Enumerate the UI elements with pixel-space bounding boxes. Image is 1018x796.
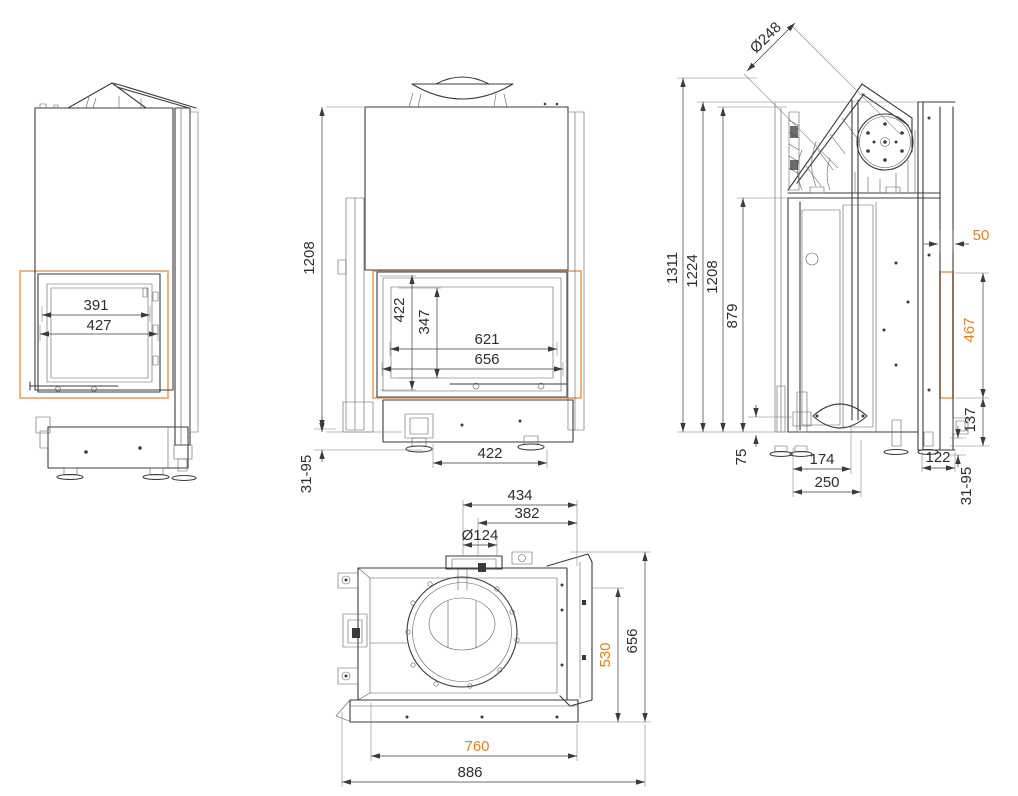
right-view-body bbox=[770, 84, 968, 457]
left-side-view: 391 427 bbox=[20, 83, 198, 481]
dim-right-frame-overhang: 50 bbox=[973, 227, 990, 244]
top-view-dimensions: 434 382 Ø124 530 656 760 886 bbox=[342, 487, 651, 787]
dim-top-front-glass-width: 760 bbox=[464, 738, 489, 755]
dim-right-frame-depth: 122 bbox=[925, 449, 950, 466]
left-view-dimensions: 391 427 bbox=[40, 297, 158, 341]
dim-right-duct-depth: 250 bbox=[814, 474, 839, 491]
left-view-body bbox=[30, 83, 198, 481]
dim-left-glass-cut-width: 391 bbox=[83, 297, 108, 314]
dim-right-glass-bottom-height: 137 bbox=[962, 407, 979, 432]
dim-right-shelf-height: 879 bbox=[724, 303, 741, 328]
dim-top-side-glass-width: 530 bbox=[597, 642, 614, 667]
top-view-body bbox=[336, 552, 592, 722]
dim-right-feet-range: 31-95 bbox=[958, 467, 975, 505]
dim-front-body-height: 1208 bbox=[301, 241, 318, 274]
dim-top-flue-center-offset: 434 bbox=[507, 487, 532, 504]
front-view: 1208 31-95 422 347 621 656 422 bbox=[298, 77, 584, 493]
dim-right-duct-offset: 174 bbox=[809, 451, 834, 468]
top-view: 434 382 Ø124 530 656 760 886 bbox=[336, 487, 651, 787]
dim-top-total-depth: 656 bbox=[624, 628, 641, 653]
dim-right-plinth-height: 75 bbox=[733, 449, 750, 466]
dim-top-flue-rear-offset: 382 bbox=[514, 505, 539, 522]
glass-highlight-left-view bbox=[20, 271, 168, 398]
glass-highlight-right-view bbox=[940, 272, 953, 398]
drawing-svg: 391 427 bbox=[0, 0, 1018, 796]
dim-left-glass-frame-width: 427 bbox=[86, 317, 111, 334]
dim-right-flue-diameter: Ø248 bbox=[747, 19, 785, 57]
right-side-view: Ø248 1311 1224 1208 879 75 174 250 bbox=[664, 19, 990, 505]
dim-front-feet-range: 31-95 bbox=[298, 455, 315, 493]
dim-front-glass-frame-height: 422 bbox=[391, 297, 408, 322]
front-view-dimensions: 1208 31-95 422 347 621 656 422 bbox=[298, 107, 563, 493]
dim-top-flue-collar-diameter: Ø124 bbox=[462, 527, 499, 544]
dim-right-body-height: 1208 bbox=[704, 260, 721, 293]
front-view-body bbox=[338, 77, 584, 452]
dim-top-total-width: 886 bbox=[457, 764, 482, 781]
dim-front-glass-cut-width: 621 bbox=[474, 331, 499, 348]
dim-front-glass-frame-width: 656 bbox=[474, 351, 499, 368]
dim-right-total-height: 1311 bbox=[664, 252, 681, 284]
dim-right-side-glass-height: 467 bbox=[961, 317, 978, 342]
dim-right-frame-top-height: 1224 bbox=[684, 254, 701, 287]
dim-front-base-width: 422 bbox=[477, 445, 502, 462]
technical-drawing-canvas: 391 427 bbox=[0, 0, 1018, 796]
dim-front-glass-cut-height: 347 bbox=[416, 309, 433, 334]
